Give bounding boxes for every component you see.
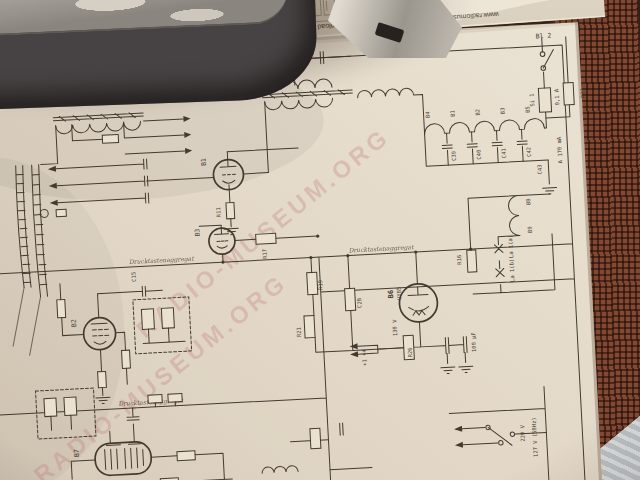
tube-label-b6: B6: [387, 290, 395, 299]
coil-label-b9: B9: [527, 226, 533, 233]
lamp-label-la1b: La 1(b): [508, 259, 515, 282]
resistor-label-r31: R31: [579, 88, 586, 98]
resistor-label-r16: R16: [456, 255, 463, 265]
tube-label-b3h: B3: [499, 107, 505, 114]
tube-label-b7: B7: [73, 449, 81, 457]
resistor-label-r21: R21: [296, 327, 303, 337]
cap-label-c28: C28: [356, 298, 363, 308]
tube-label-b1: B1: [200, 158, 208, 166]
tube-type-uy85: UY85: [396, 287, 403, 301]
cap-label-c42: C42: [525, 147, 532, 157]
resistor-label-r17: R17: [261, 249, 268, 259]
cap-label-c41: C41: [500, 148, 507, 158]
tube-label-b2: B2: [70, 319, 78, 327]
resistor-label-r26: R26: [407, 347, 414, 357]
coil-label-b8: B8: [525, 198, 531, 205]
tube-label-b1h: B1: [449, 110, 455, 117]
cap-label-c39: C39: [451, 151, 458, 161]
voltage-plus1-4: +1 +4: [361, 348, 368, 366]
page-label: Bl 2: [535, 32, 551, 41]
voltage-130v: 130 V: [391, 319, 398, 337]
fuse-label: Si 1: [529, 93, 536, 107]
cap-label-c40: C40: [475, 149, 482, 159]
cap-label-c43: C43: [536, 164, 543, 174]
lamp-label-la1a: La 1(a): [507, 235, 514, 258]
tube-label-b4: B4: [424, 111, 430, 119]
photo-of-schematic: RADIO-MUSEUM.ORG RADIO-MUSEUM.ORG Druckt…: [0, 0, 640, 480]
resistor-label-r11: R11: [215, 207, 222, 217]
cap-label-c15: C15: [130, 272, 137, 282]
mains-220-label: 220 V: [519, 424, 526, 442]
fuse-rating: 0,1 A: [553, 88, 560, 106]
tube-label-b2h: B2: [474, 109, 480, 116]
resistor-label-r19: R19: [317, 280, 324, 290]
tube-label-b3: B3: [193, 228, 201, 236]
metal-clip-dark-clamp: [375, 22, 405, 43]
